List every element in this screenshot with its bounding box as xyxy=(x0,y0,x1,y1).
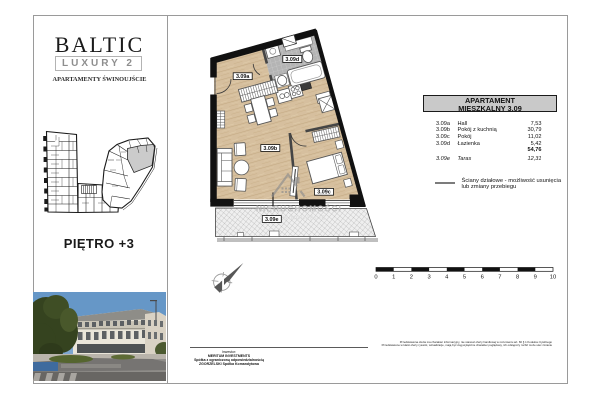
svg-text:8: 8 xyxy=(516,275,519,281)
svg-text:3.09a: 3.09a xyxy=(236,74,250,80)
svg-text:10: 10 xyxy=(550,275,556,281)
svg-text:NIERUCHOMOŚCI: NIERUCHOMOŚCI xyxy=(256,203,342,214)
svg-text:3.09c: 3.09c xyxy=(317,190,331,196)
svg-text:3.09e: 3.09e xyxy=(265,217,279,223)
svg-text:7: 7 xyxy=(498,275,501,281)
svg-text:3.09d: 3.09d xyxy=(285,57,299,63)
svg-text:3: 3 xyxy=(427,275,430,281)
svg-text:2: 2 xyxy=(410,275,413,281)
svg-text:0: 0 xyxy=(374,275,377,281)
svg-text:9: 9 xyxy=(534,275,537,281)
svg-text:6: 6 xyxy=(481,275,484,281)
svg-text:1: 1 xyxy=(392,275,395,281)
svg-text:3.09b: 3.09b xyxy=(263,146,277,152)
svg-text:4: 4 xyxy=(445,275,449,281)
svg-text:5: 5 xyxy=(463,275,466,281)
svg-text:ŚWINOUJŚCIE: ŚWINOUJŚCIE xyxy=(278,215,326,222)
